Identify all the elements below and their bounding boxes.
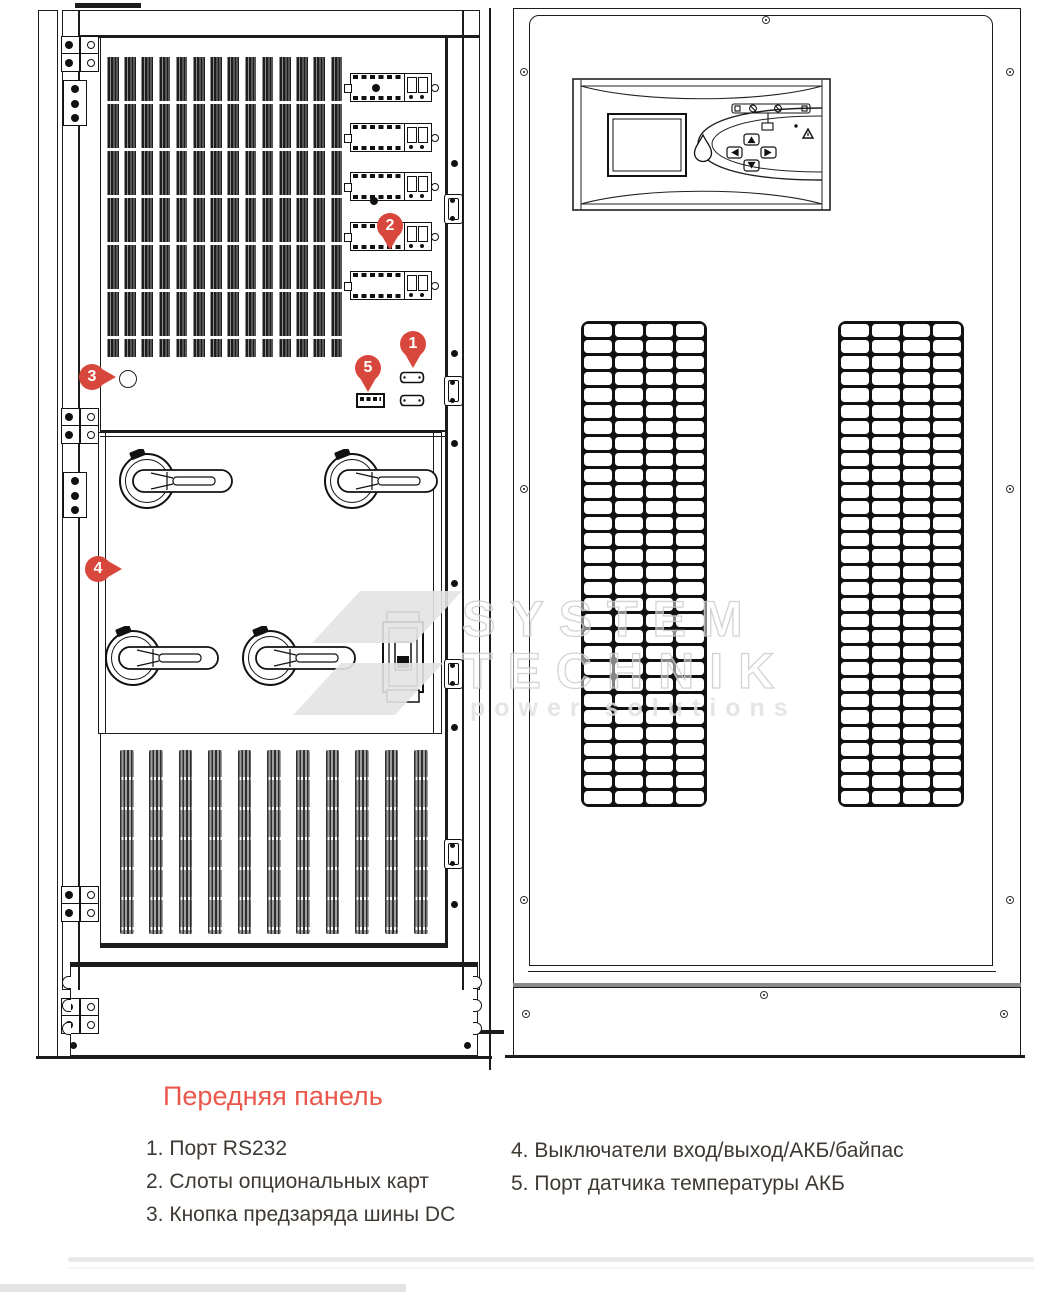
footer-rule-thin <box>68 1267 1034 1269</box>
hinge-pin <box>87 59 95 67</box>
vent-slot <box>646 710 674 723</box>
vent-slot <box>903 630 931 643</box>
bottom-vent-slot <box>296 750 310 934</box>
vent-slot <box>872 324 900 337</box>
figure-title: Передняя панель <box>163 1081 383 1112</box>
vent-slot <box>646 372 674 385</box>
rotary-breaker-switch[interactable] <box>103 626 233 695</box>
vent-slot <box>615 775 643 788</box>
vent-slot <box>841 775 869 788</box>
vent-slot <box>933 646 961 659</box>
panel-screw <box>520 68 528 76</box>
vent-slot <box>615 678 643 691</box>
vent-slot <box>676 710 704 723</box>
vent-slot <box>646 517 674 530</box>
vent-slot <box>646 727 674 740</box>
vent-slot <box>841 501 869 514</box>
vent-slot <box>841 469 869 482</box>
vent-slot <box>903 517 931 530</box>
vent-slot <box>676 501 704 514</box>
hinge-pin <box>87 1021 95 1029</box>
bottom-vent-slot <box>238 750 252 934</box>
vent-slot <box>872 453 900 466</box>
heatsink-fin <box>331 57 343 357</box>
rotary-breaker-switch[interactable] <box>322 449 452 518</box>
vent-slot <box>933 614 961 627</box>
vent-slot <box>933 791 961 804</box>
slot-pin <box>344 282 352 291</box>
vent-slot <box>615 598 643 611</box>
vent-slot <box>584 566 612 579</box>
vent-slot <box>841 566 869 579</box>
vent-slot <box>903 791 931 804</box>
vent-slot <box>676 662 704 675</box>
panel-screw <box>464 1042 471 1049</box>
lcd-screen <box>608 114 686 176</box>
vent-slot <box>584 582 612 595</box>
vent-slot <box>676 533 704 546</box>
left-cabinet-open-door-edge <box>38 10 58 1058</box>
legend-number: 1. <box>146 1137 164 1160</box>
slot-pin <box>344 233 352 242</box>
vent-slot <box>676 743 704 756</box>
vent-slot <box>646 324 674 337</box>
dc-precharge-button[interactable] <box>119 370 137 388</box>
vent-slot <box>903 372 931 385</box>
front-panel-figure: SYSTEM TECHNIK power solutions 1 2 3 4 5 <box>0 0 1051 1292</box>
vent-slot <box>615 614 643 627</box>
vent-slot <box>584 437 612 450</box>
db9-port-icon <box>399 394 425 412</box>
door-latch[interactable] <box>444 194 463 224</box>
vent-slot <box>933 694 961 707</box>
vent-slot <box>933 340 961 353</box>
slot-stud <box>372 84 380 92</box>
heatsink-fin <box>107 57 119 357</box>
vent-slot <box>872 694 900 707</box>
panel-screw <box>451 160 458 167</box>
slot-pin <box>344 84 352 93</box>
vent-slot <box>676 566 704 579</box>
plinth-tab <box>473 976 482 989</box>
vent-slot <box>903 501 931 514</box>
heatsink-fin <box>227 57 239 357</box>
slot-pin <box>431 134 439 142</box>
vent-slot <box>646 694 674 707</box>
legend-number: 3. <box>146 1203 164 1226</box>
vent-slot <box>646 533 674 546</box>
latch-pin <box>450 198 455 203</box>
connector-module <box>418 77 428 93</box>
plinth-top <box>70 962 478 966</box>
vent-slot <box>841 662 869 675</box>
vent-slot <box>646 405 674 418</box>
panel-screw <box>520 485 528 493</box>
vent-slot <box>872 372 900 385</box>
vent-slot <box>841 453 869 466</box>
plinth-tab <box>62 999 71 1012</box>
vent-slot <box>872 501 900 514</box>
vent-slot <box>903 437 931 450</box>
vent-slot <box>615 485 643 498</box>
vent-slot <box>584 694 612 707</box>
vent-grille-right <box>838 321 964 807</box>
vent-slot <box>615 453 643 466</box>
heatsink-fin <box>159 57 171 357</box>
plinth-tab <box>62 1022 71 1035</box>
vent-slot <box>841 727 869 740</box>
vent-slot <box>676 485 704 498</box>
heatsink-fin <box>245 57 257 357</box>
vent-slot <box>676 759 704 772</box>
vent-slot <box>646 340 674 353</box>
slot-pin <box>431 84 439 92</box>
panel-bottom <box>100 943 446 947</box>
vent-slot <box>646 759 674 772</box>
vent-slot <box>584 469 612 482</box>
vent-slot <box>615 517 643 530</box>
vent-slot <box>872 549 900 562</box>
vent-slot <box>584 453 612 466</box>
door-stay-bracket <box>63 80 87 126</box>
heatsink-fin <box>296 57 308 357</box>
panel-screw <box>70 1042 77 1049</box>
vent-slot <box>615 324 643 337</box>
vent-slot <box>615 437 643 450</box>
door-latch[interactable] <box>444 376 463 406</box>
vent-slot <box>584 710 612 723</box>
heatsink-fin <box>262 57 274 357</box>
vent-slot <box>841 388 869 401</box>
panel-screw <box>451 901 458 908</box>
vent-slot <box>872 678 900 691</box>
bracket-pin <box>71 506 79 514</box>
hinge-pin <box>65 909 73 917</box>
bracket-pin <box>71 492 79 500</box>
vent-slot <box>584 324 612 337</box>
door-latch[interactable] <box>444 659 463 689</box>
vent-slot <box>903 694 931 707</box>
connector-screw <box>420 95 424 99</box>
slot-pin <box>431 183 439 191</box>
vent-slot <box>584 678 612 691</box>
vent-slot <box>584 485 612 498</box>
vent-slot <box>584 356 612 369</box>
option-card-slot <box>350 172 432 201</box>
vent-slot <box>841 485 869 498</box>
vent-slot <box>676 324 704 337</box>
legend-number: 2. <box>146 1170 164 1193</box>
bottom-vent-slot <box>120 750 134 934</box>
panel-screw <box>1000 1010 1008 1018</box>
connector-screw <box>420 293 424 297</box>
vent-slot <box>903 662 931 675</box>
top-bar <box>78 35 480 38</box>
legend-number: 5. <box>511 1172 529 1195</box>
vent-slot <box>646 469 674 482</box>
vent-slot <box>841 694 869 707</box>
panel-screw <box>451 724 458 731</box>
vent-slot <box>903 356 931 369</box>
vent-slot <box>933 582 961 595</box>
heatsink-fin <box>279 57 291 357</box>
vent-slot <box>903 469 931 482</box>
connector-screw <box>409 145 413 149</box>
callout-marker-1: 1 <box>400 331 426 357</box>
vent-slot <box>841 340 869 353</box>
vent-slot <box>903 582 931 595</box>
latch-pin <box>450 681 455 686</box>
latch-pin <box>450 663 455 668</box>
vent-slot <box>841 678 869 691</box>
vent-slot <box>903 598 931 611</box>
hinge-pin <box>65 891 73 899</box>
panel-screw <box>451 350 458 357</box>
vent-slot <box>615 710 643 723</box>
vent-slot <box>584 775 612 788</box>
bracket-pin <box>71 114 79 122</box>
vent-slot <box>933 743 961 756</box>
panel-screw <box>451 440 458 447</box>
vent-slot <box>646 791 674 804</box>
vent-slot <box>646 566 674 579</box>
vent-slot <box>903 405 931 418</box>
slot-connector <box>404 223 431 250</box>
door-latch[interactable] <box>444 839 463 869</box>
connector-module <box>418 275 428 291</box>
vent-slot <box>933 759 961 772</box>
vent-slot <box>676 340 704 353</box>
bracket-pin <box>71 85 79 93</box>
connector-module <box>407 275 417 291</box>
legend-text: Выключатели вход/выход/АКБ/байпас <box>529 1139 904 1162</box>
door-hinge <box>61 886 99 922</box>
vent-slot <box>615 759 643 772</box>
panel-screw <box>1006 485 1014 493</box>
vent-slot <box>584 791 612 804</box>
vent-slot <box>903 340 931 353</box>
callout-marker-4: 4 <box>85 556 111 582</box>
door-bottom-line <box>528 971 996 972</box>
vent-slot <box>872 340 900 353</box>
bracket-pin <box>71 477 79 485</box>
heatsink-fin <box>193 57 205 357</box>
hinge-pin <box>87 891 95 899</box>
door-stay-bracket <box>63 472 87 518</box>
vent-slot <box>841 421 869 434</box>
vent-slot <box>903 388 931 401</box>
vent-slot <box>676 453 704 466</box>
vent-slot <box>646 453 674 466</box>
mcb-breaker[interactable] <box>380 610 426 709</box>
vent-slot <box>646 582 674 595</box>
door-hinge <box>61 408 99 444</box>
vent-slot <box>841 710 869 723</box>
vent-slot <box>584 743 612 756</box>
vent-slot <box>841 598 869 611</box>
bottom-vent-slot <box>149 750 163 934</box>
vent-slot <box>584 630 612 643</box>
panel-screw <box>451 580 458 587</box>
vent-slot <box>872 759 900 772</box>
vent-slot <box>903 324 931 337</box>
vent-slot <box>584 517 612 530</box>
option-card-slot <box>350 73 432 102</box>
vent-slot <box>615 533 643 546</box>
heatsink-fin <box>313 57 325 357</box>
connector-module <box>407 77 417 93</box>
vent-slot <box>872 388 900 401</box>
vent-slot <box>903 710 931 723</box>
slot-pin <box>344 183 352 192</box>
vent-slot <box>933 549 961 562</box>
plinth-tab <box>62 976 71 989</box>
bottom-vent-slot <box>267 750 281 934</box>
latch-pin <box>450 216 455 221</box>
slot-connector <box>404 173 431 200</box>
legend-text: Порт датчика температуры АКБ <box>529 1172 845 1195</box>
bottom-vent-slot <box>326 750 340 934</box>
vent-slot <box>872 405 900 418</box>
vent-slot <box>646 743 674 756</box>
hinge-pin <box>65 41 73 49</box>
left-cabinet-plinth <box>70 966 478 1056</box>
vent-slot <box>676 791 704 804</box>
vent-slot <box>615 388 643 401</box>
vent-slot <box>841 759 869 772</box>
vent-slot <box>933 662 961 675</box>
vent-slot <box>584 614 612 627</box>
vent-slot <box>584 388 612 401</box>
connector-module <box>407 176 417 192</box>
vent-slot <box>584 662 612 675</box>
bracket-pin <box>71 100 79 108</box>
vent-slot <box>872 727 900 740</box>
slot-connector <box>404 272 431 299</box>
vent-slot <box>676 469 704 482</box>
vent-slot <box>584 405 612 418</box>
vent-slot <box>615 646 643 659</box>
option-card-slot <box>350 123 432 152</box>
vent-slot <box>933 710 961 723</box>
top-cap <box>75 3 141 8</box>
vent-slot <box>615 566 643 579</box>
connector-module <box>407 226 417 242</box>
vent-slot <box>646 421 674 434</box>
connector-module <box>407 127 417 143</box>
callout-marker-5: 5 <box>355 355 381 381</box>
vent-slot <box>872 646 900 659</box>
vent-slot <box>615 582 643 595</box>
rotary-breaker-switch[interactable] <box>117 449 247 518</box>
vent-slot <box>933 372 961 385</box>
heatsink-fin <box>176 57 188 357</box>
vent-slot <box>615 791 643 804</box>
vent-slot <box>584 549 612 562</box>
bottom-vent-slot <box>208 750 222 934</box>
connector-module <box>418 226 428 242</box>
vent-slot <box>872 775 900 788</box>
vent-slot <box>615 356 643 369</box>
vent-slot <box>841 646 869 659</box>
hinge-pin <box>65 413 73 421</box>
panel-screw <box>522 1010 530 1018</box>
vent-slot <box>584 340 612 353</box>
vent-slot <box>676 727 704 740</box>
vent-slot <box>676 388 704 401</box>
panel-screw <box>1006 896 1014 904</box>
vent-slot <box>933 678 961 691</box>
heatsink-fin <box>124 57 136 357</box>
door-hinge <box>61 36 99 72</box>
hinge-pin <box>87 431 95 439</box>
hinge-pin <box>87 413 95 421</box>
vent-slot <box>872 517 900 530</box>
vent-slot <box>933 437 961 450</box>
vent-slot <box>676 421 704 434</box>
vent-slot <box>676 646 704 659</box>
bottom-edge-bar <box>0 1284 406 1292</box>
vent-slot <box>933 485 961 498</box>
vent-slot <box>676 372 704 385</box>
vent-slot <box>933 630 961 643</box>
bottom-vent-slot <box>385 750 399 934</box>
vent-slot <box>676 517 704 530</box>
vent-slot <box>615 549 643 562</box>
vent-slot <box>933 727 961 740</box>
vent-slot <box>872 356 900 369</box>
vent-slot <box>841 743 869 756</box>
vent-slot <box>903 533 931 546</box>
vent-slot <box>933 405 961 418</box>
vent-slot <box>933 356 961 369</box>
slot-pin <box>431 282 439 290</box>
vent-slot <box>646 630 674 643</box>
vent-slot <box>933 469 961 482</box>
vent-slot <box>646 501 674 514</box>
hinge-pin <box>65 431 73 439</box>
slot-pin <box>344 134 352 143</box>
panel-screw <box>370 197 378 205</box>
connector-module <box>418 127 428 143</box>
bottom-vent-slot <box>179 750 193 934</box>
vent-slot <box>646 678 674 691</box>
vent-slot <box>646 614 674 627</box>
vent-slot <box>584 501 612 514</box>
vent-slot <box>646 662 674 675</box>
legend-item: 2. Слоты опциональных карт <box>146 1165 455 1198</box>
vent-slot <box>646 388 674 401</box>
vent-slot <box>615 662 643 675</box>
connector-screw <box>420 194 424 198</box>
vent-slot <box>646 356 674 369</box>
cabinet-gap-line <box>489 8 491 1070</box>
vent-slot <box>872 437 900 450</box>
vent-slot <box>584 646 612 659</box>
rotary-breaker-switch[interactable] <box>240 626 370 695</box>
vent-slot <box>676 437 704 450</box>
ups-front-panel-diagram-page: SYSTEM TECHNIK power solutions 1 2 3 4 5… <box>0 0 1051 1292</box>
vent-slot <box>646 485 674 498</box>
vent-slot <box>584 421 612 434</box>
legend-item: 5. Порт датчика температуры АКБ <box>511 1167 904 1200</box>
panel-screw <box>1006 68 1014 76</box>
battery-temp-sensor-port <box>356 393 385 408</box>
vent-slot <box>872 614 900 627</box>
control-display-panel <box>572 78 832 217</box>
bottom-vent-slot <box>414 750 428 934</box>
vent-slot <box>841 517 869 530</box>
